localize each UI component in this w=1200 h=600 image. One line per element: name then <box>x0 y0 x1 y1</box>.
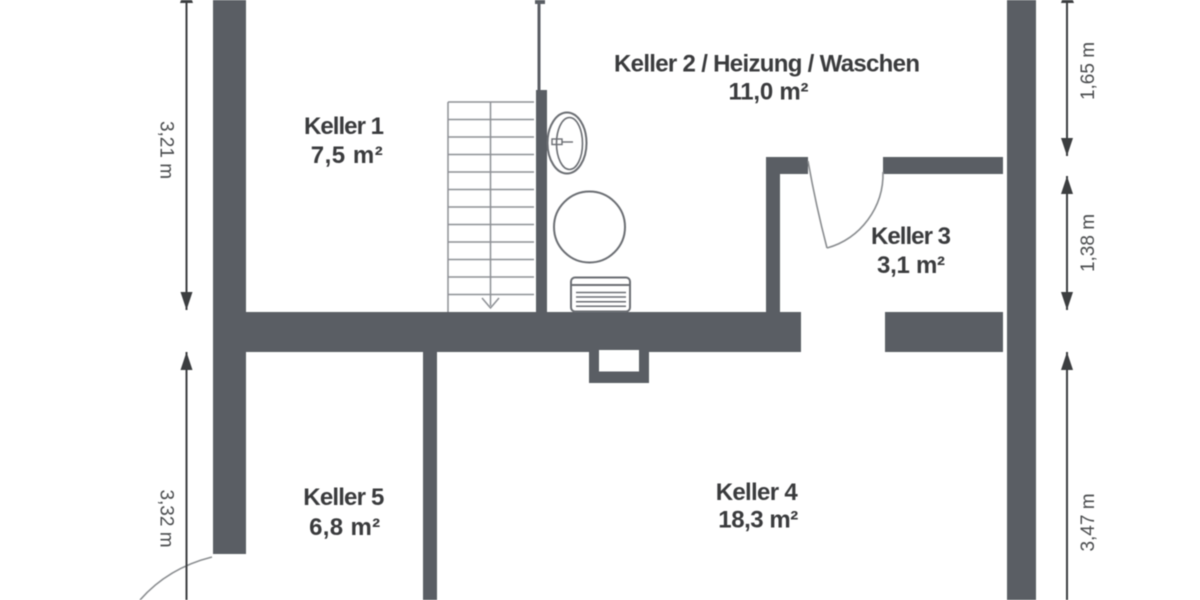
svg-text:6,8 m²: 6,8 m² <box>309 514 380 541</box>
svg-text:3,21 m: 3,21 m <box>156 121 177 179</box>
svg-text:1,65 m: 1,65 m <box>1078 42 1099 100</box>
svg-text:3,32 m: 3,32 m <box>156 489 177 547</box>
svg-text:Keller 5: Keller 5 <box>303 484 384 511</box>
svg-text:7,5 m²: 7,5 m² <box>311 142 383 169</box>
svg-text:11,0 m²: 11,0 m² <box>729 79 809 106</box>
svg-text:3,47 m: 3,47 m <box>1078 493 1099 551</box>
svg-text:Keller 3: Keller 3 <box>871 223 951 250</box>
svg-text:Keller 4: Keller 4 <box>716 479 799 506</box>
svg-text:18,3 m²: 18,3 m² <box>718 507 798 534</box>
svg-text:1,38 m: 1,38 m <box>1078 214 1099 272</box>
svg-text:Keller 2 / Heizung / Waschen: Keller 2 / Heizung / Waschen <box>614 51 920 78</box>
svg-text:3,1 m²: 3,1 m² <box>877 252 945 279</box>
svg-text:Keller 1: Keller 1 <box>304 113 384 140</box>
